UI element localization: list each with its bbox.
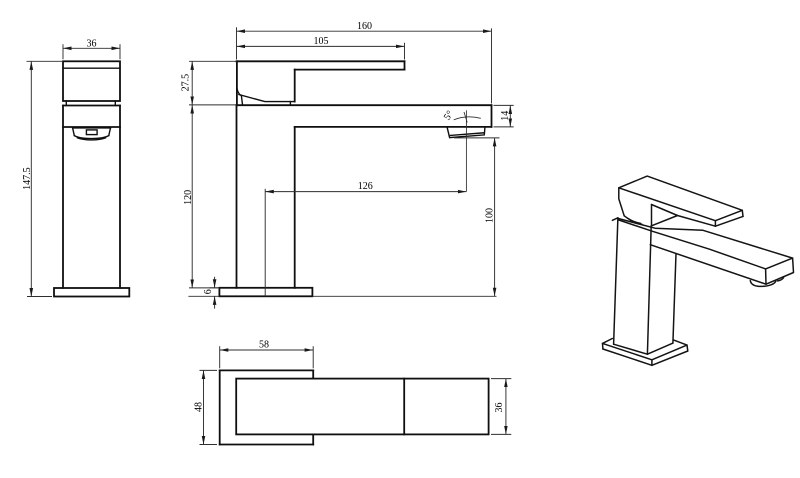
- svg-text:126: 126: [358, 181, 373, 192]
- svg-text:36: 36: [494, 403, 505, 413]
- svg-text:100: 100: [484, 208, 495, 223]
- svg-text:58: 58: [259, 340, 269, 351]
- svg-text:120: 120: [183, 190, 194, 205]
- svg-text:6: 6: [203, 289, 214, 294]
- svg-text:105: 105: [314, 36, 329, 47]
- svg-text:48: 48: [194, 402, 205, 412]
- svg-text:27.5: 27.5: [180, 74, 191, 92]
- svg-text:36: 36: [87, 38, 97, 49]
- svg-text:14: 14: [500, 111, 511, 121]
- svg-text:147.5: 147.5: [22, 167, 33, 190]
- svg-text:160: 160: [357, 21, 372, 32]
